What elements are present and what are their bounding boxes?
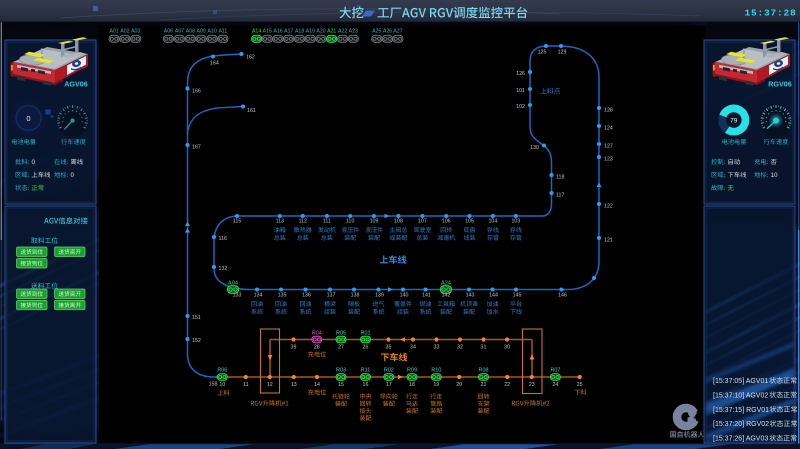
svg-text:18: 18 [409, 382, 415, 388]
svg-text:A27: A27 [393, 29, 402, 35]
svg-text:151: 151 [192, 315, 201, 321]
svg-text:A20: A20 [316, 29, 325, 35]
svg-text:[15:37:20] RGV02: [15:37:20] RGV02 [713, 421, 769, 428]
svg-text:A08: A08 [186, 29, 195, 35]
svg-text:106: 106 [442, 219, 451, 225]
svg-text:13: 13 [291, 382, 297, 388]
svg-text:A15: A15 [263, 29, 272, 35]
svg-text:135: 135 [278, 293, 287, 299]
svg-text:26: 26 [363, 345, 369, 351]
svg-text:A17: A17 [284, 29, 293, 35]
svg-text:21: 21 [481, 382, 487, 388]
svg-text:A23: A23 [349, 29, 358, 35]
svg-text:A09: A09 [196, 29, 205, 35]
svg-text:103: 103 [511, 219, 520, 225]
svg-text:109: 109 [370, 219, 379, 225]
svg-text:30: 30 [504, 345, 510, 351]
svg-text:125: 125 [538, 50, 547, 56]
svg-text:R05: R05 [336, 331, 346, 337]
svg-text:140: 140 [400, 293, 409, 299]
svg-text:10: 10 [219, 382, 225, 388]
svg-text:117: 117 [556, 193, 564, 199]
svg-text:R01: R01 [361, 331, 371, 337]
svg-text:166: 166 [192, 89, 201, 95]
svg-text:A07: A07 [175, 29, 184, 35]
svg-text:145: 145 [513, 293, 522, 299]
svg-text:12: 12 [267, 382, 273, 388]
svg-text:32: 32 [457, 345, 463, 351]
svg-text:118: 118 [556, 175, 564, 181]
svg-text:111: 111 [323, 219, 331, 225]
svg-text:110: 110 [346, 219, 354, 225]
svg-text:143: 143 [466, 293, 475, 299]
svg-text:R07: R07 [550, 368, 560, 374]
svg-text:16: 16 [363, 382, 369, 388]
svg-text:19: 19 [433, 382, 439, 388]
svg-text:A16: A16 [273, 29, 282, 35]
svg-text:104: 104 [488, 219, 497, 225]
svg-text:25: 25 [577, 382, 583, 388]
svg-text:136: 136 [302, 293, 311, 299]
svg-text:AGV06: AGV06 [64, 80, 88, 89]
svg-text:161: 161 [247, 108, 256, 114]
svg-text:113: 113 [276, 219, 284, 225]
svg-text:34: 34 [410, 345, 416, 351]
svg-text:133: 133 [233, 293, 242, 299]
svg-text:124: 124 [604, 126, 613, 132]
svg-text:28: 28 [314, 345, 320, 351]
svg-text:A02: A02 [120, 29, 129, 35]
svg-text:R04: R04 [312, 331, 322, 337]
svg-text:A01: A01 [109, 29, 118, 35]
svg-text:126: 126 [516, 71, 525, 77]
svg-text:A03: A03 [131, 29, 140, 35]
svg-text:122: 122 [604, 204, 613, 210]
svg-text:123: 123 [604, 157, 613, 163]
svg-text:146: 146 [558, 293, 567, 299]
svg-text:11: 11 [243, 382, 249, 388]
svg-text:A22: A22 [338, 29, 347, 35]
svg-text:134: 134 [254, 293, 263, 299]
svg-text:10: 10 [771, 172, 779, 179]
svg-text:R10: R10 [431, 368, 441, 374]
svg-text:128: 128 [604, 108, 613, 114]
svg-text:142: 142 [442, 293, 451, 299]
svg-text:130: 130 [530, 145, 539, 151]
svg-text:R02: R02 [384, 368, 394, 374]
svg-text:A25: A25 [372, 29, 381, 35]
svg-text:A19: A19 [306, 29, 315, 35]
svg-text:141: 141 [422, 293, 431, 299]
svg-text:15: 15 [338, 382, 344, 388]
svg-text:164: 164 [210, 61, 219, 67]
svg-text:35: 35 [386, 345, 392, 351]
svg-text:15:37:28: 15:37:28 [744, 7, 796, 18]
svg-text:0: 0 [26, 114, 30, 123]
svg-text:144: 144 [489, 293, 498, 299]
svg-text:27: 27 [338, 345, 344, 351]
svg-text:129: 129 [558, 50, 567, 56]
svg-text:22: 22 [504, 382, 510, 388]
svg-text:[15:37:26] AGV03: [15:37:26] AGV03 [713, 436, 768, 443]
svg-text:108: 108 [394, 219, 403, 225]
svg-text:[15:37:05] AGV01: [15:37:05] AGV01 [713, 378, 768, 385]
svg-text:17: 17 [386, 382, 392, 388]
svg-text:R09: R09 [407, 368, 417, 374]
svg-text:0: 0 [71, 172, 75, 179]
svg-text:107: 107 [418, 219, 427, 225]
svg-text:102: 102 [516, 104, 525, 110]
svg-text:39: 39 [291, 345, 297, 351]
svg-text:138: 138 [351, 293, 360, 299]
svg-text:[15:37:10] AGV02: [15:37:10] AGV02 [713, 392, 768, 399]
svg-text:31: 31 [481, 345, 487, 351]
svg-text:112: 112 [299, 219, 307, 225]
svg-text:105: 105 [465, 219, 474, 225]
svg-text:116: 116 [219, 236, 227, 242]
svg-text:127: 127 [604, 144, 613, 150]
svg-text:RGV06: RGV06 [768, 80, 792, 89]
svg-text:R03: R03 [336, 368, 346, 374]
svg-text:162: 162 [246, 55, 255, 61]
svg-text:121: 121 [604, 238, 613, 244]
svg-text:A26: A26 [383, 29, 392, 35]
svg-text:R08: R08 [479, 368, 489, 374]
svg-text:20: 20 [456, 382, 462, 388]
svg-text:137: 137 [327, 293, 336, 299]
svg-text:101: 101 [516, 88, 525, 94]
svg-text:A10: A10 [207, 29, 216, 35]
svg-text:33: 33 [434, 345, 440, 351]
svg-text:158: 158 [209, 382, 218, 388]
svg-text:115: 115 [233, 219, 241, 225]
svg-text:167: 167 [192, 145, 201, 151]
svg-text:152: 152 [192, 338, 201, 344]
svg-text:79: 79 [730, 118, 738, 125]
svg-text:A06: A06 [164, 29, 173, 35]
svg-text:A14: A14 [252, 29, 261, 35]
svg-text:14: 14 [314, 382, 320, 388]
svg-text:A21: A21 [327, 29, 336, 35]
svg-text:0: 0 [32, 159, 36, 166]
svg-text:A11: A11 [218, 29, 227, 35]
svg-text:R06: R06 [217, 368, 227, 374]
svg-text:R11: R11 [361, 368, 371, 374]
svg-text:23: 23 [529, 382, 535, 388]
svg-text:132: 132 [219, 266, 228, 272]
svg-text:A18: A18 [295, 29, 304, 35]
svg-text:[15:37:15] RGV01: [15:37:15] RGV01 [713, 407, 769, 414]
svg-text:139: 139 [375, 293, 384, 299]
svg-text:24: 24 [552, 382, 558, 388]
